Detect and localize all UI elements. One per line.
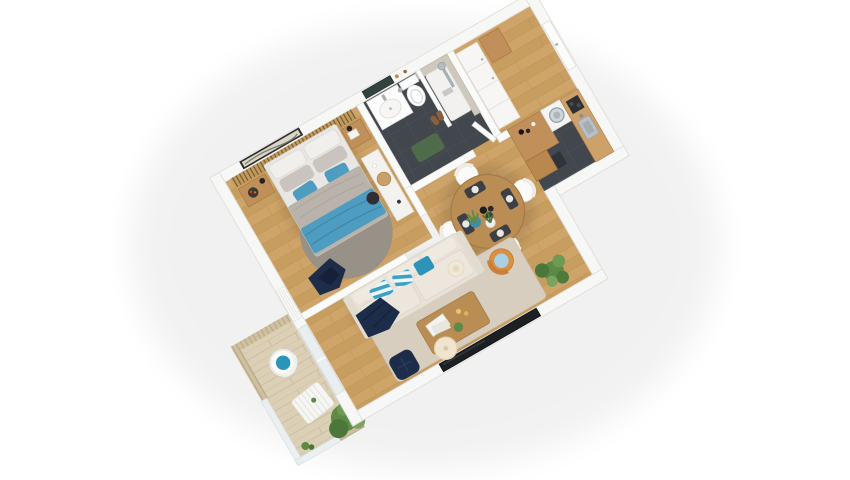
floorplan-render: 3D isometric floor plan render of a one-… [0, 0, 850, 480]
apartment-3d-floorplan: 3D isometric floor plan render of a one-… [0, 0, 850, 480]
